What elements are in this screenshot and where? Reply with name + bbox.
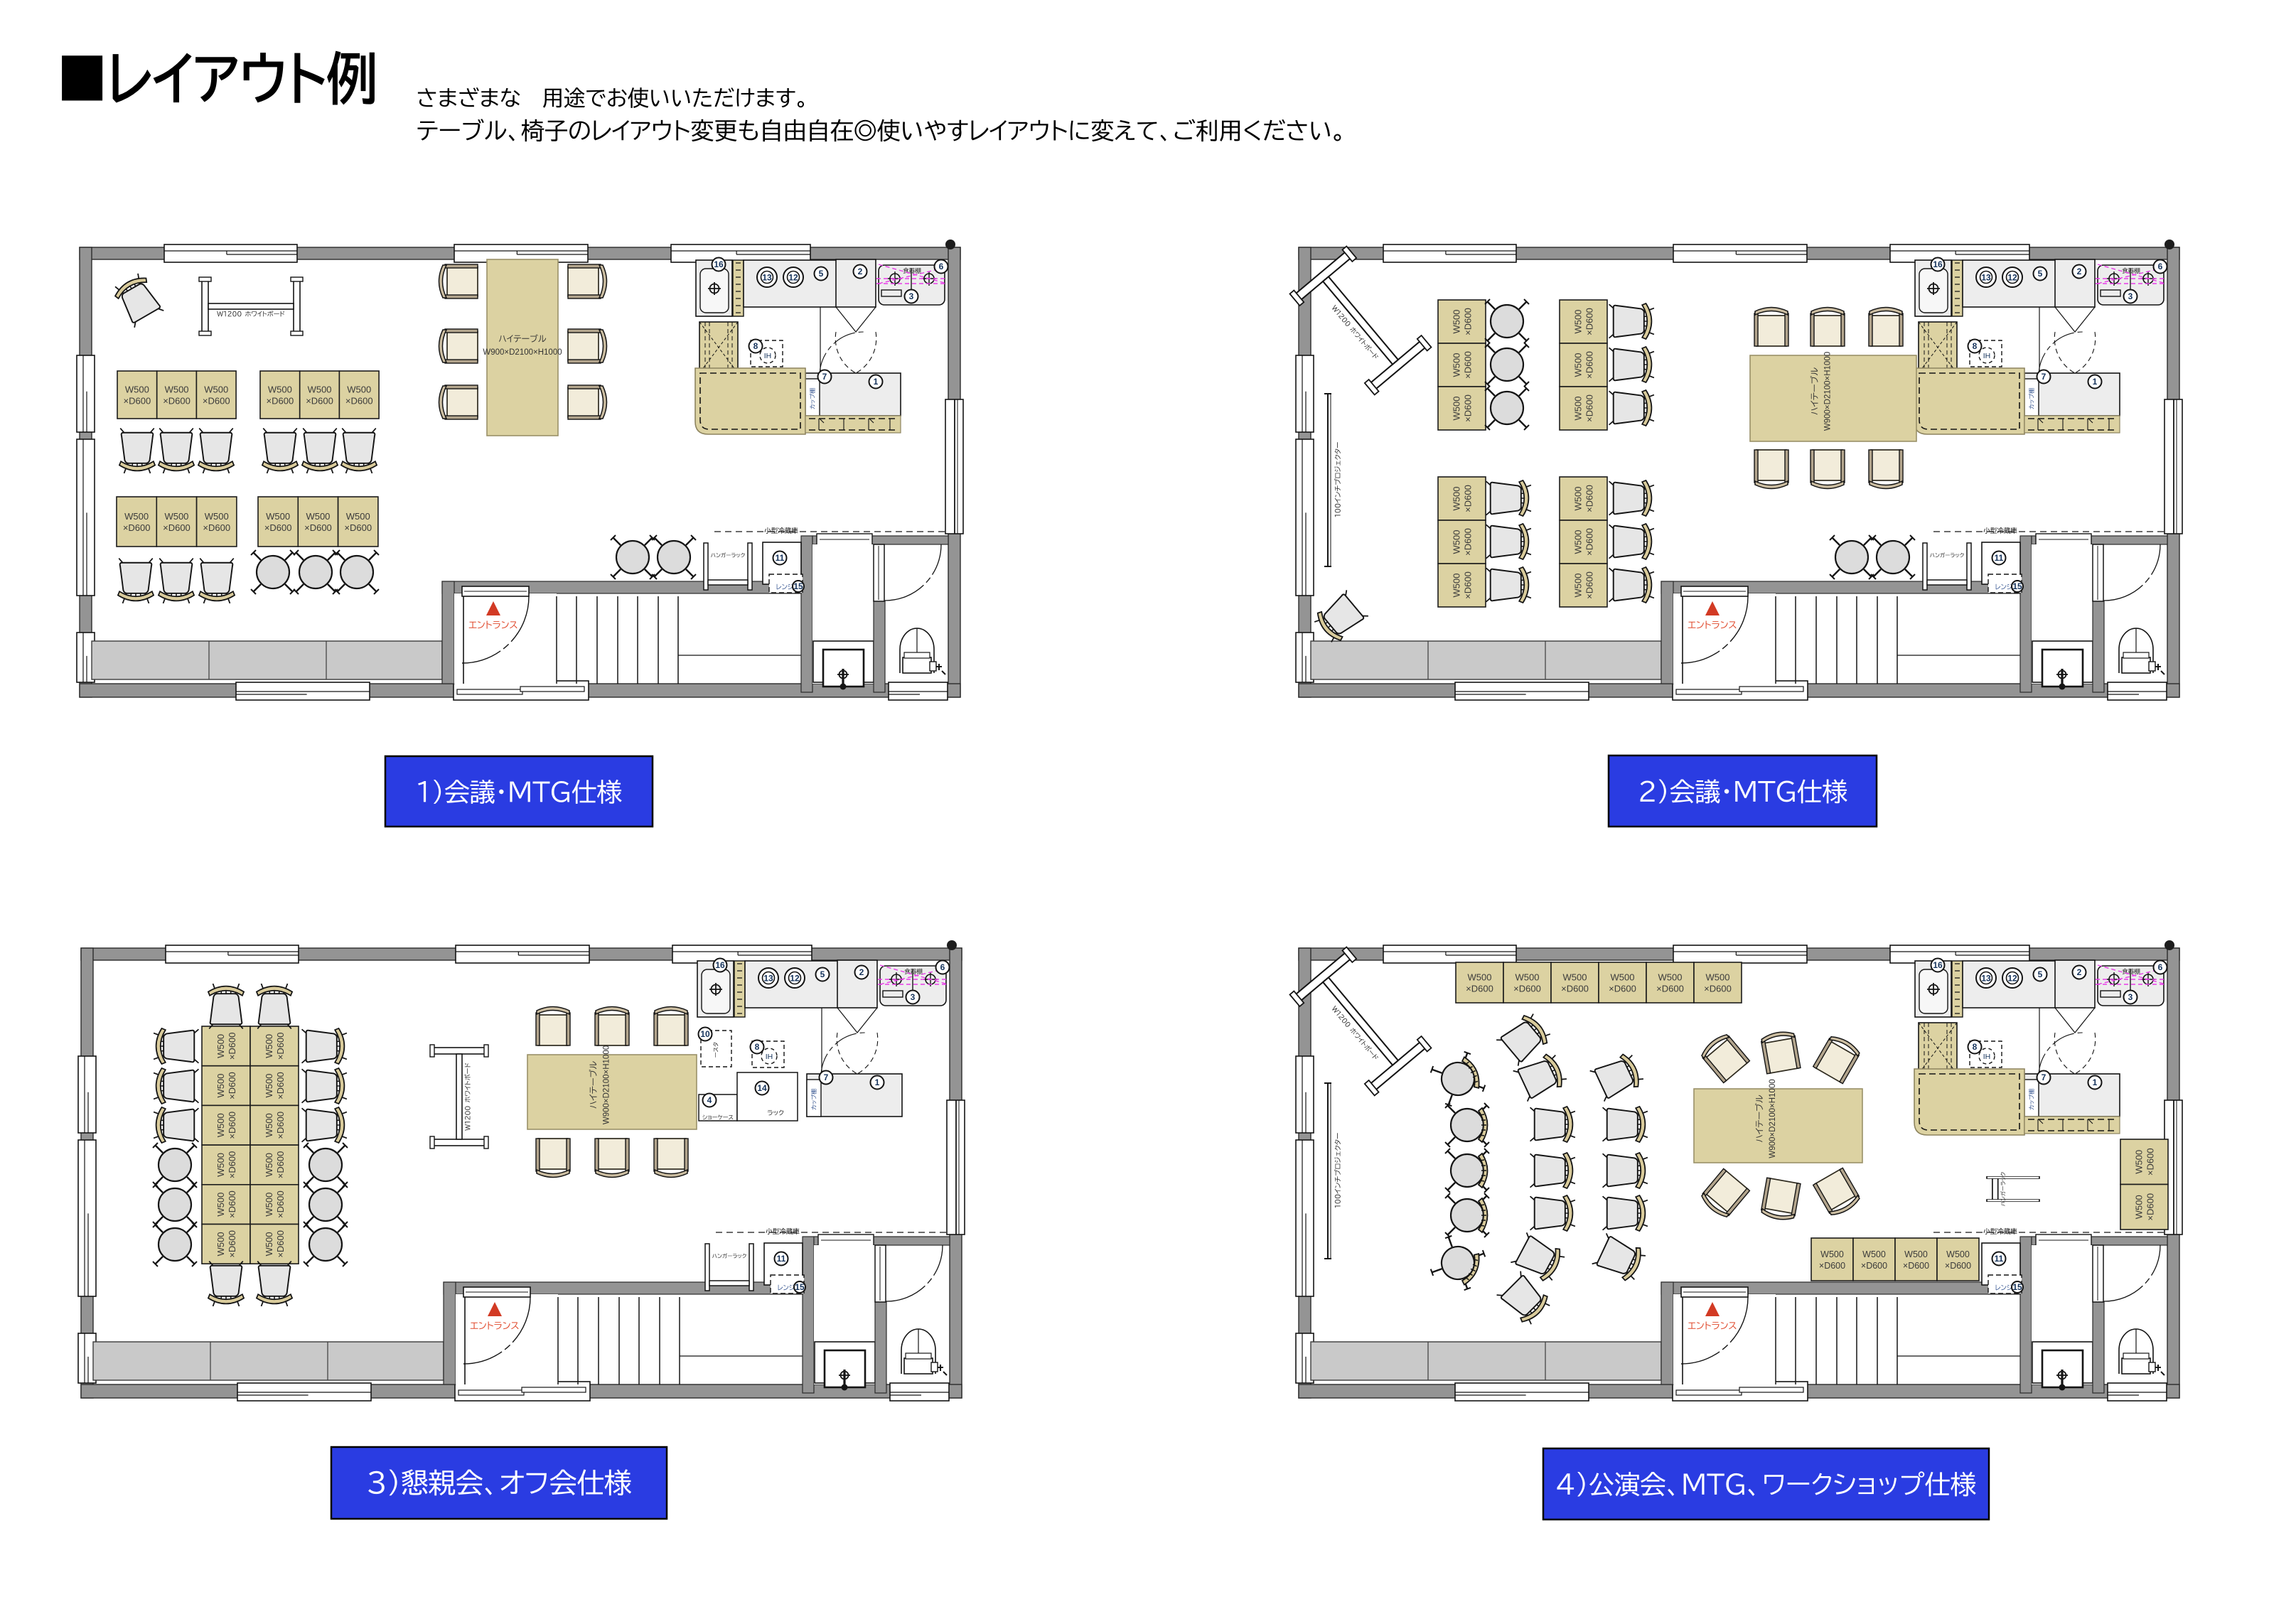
svg-text:×D600: ×D600 [203, 522, 230, 533]
svg-text:×D600: ×D600 [1945, 1261, 1971, 1271]
svg-text:×D600: ×D600 [1513, 984, 1541, 994]
svg-text:14: 14 [757, 1083, 767, 1093]
svg-text:W500: W500 [165, 384, 189, 395]
svg-text:×D600: ×D600 [2145, 1193, 2156, 1221]
svg-text:×D600: ×D600 [1561, 984, 1589, 994]
svg-text:×D600: ×D600 [275, 1151, 286, 1179]
svg-text:W500: W500 [204, 384, 228, 395]
svg-text:×D600: ×D600 [123, 522, 151, 533]
svg-text:×D600: ×D600 [1466, 984, 1493, 994]
svg-text:×D600: ×D600 [275, 1033, 286, 1060]
svg-text:W500: W500 [1468, 972, 1492, 983]
svg-text:W500: W500 [1452, 397, 1462, 421]
svg-text:W500: W500 [1946, 1249, 1970, 1259]
svg-text:W500: W500 [164, 511, 188, 522]
svg-text:×D600: ×D600 [1463, 394, 1474, 422]
svg-text:W500: W500 [268, 384, 292, 395]
svg-text:×D600: ×D600 [275, 1072, 286, 1099]
svg-text:4: 4 [707, 1095, 712, 1105]
svg-text:W500: W500 [306, 511, 330, 522]
svg-text:×D600: ×D600 [304, 522, 332, 533]
svg-text:×D600: ×D600 [227, 1033, 237, 1060]
svg-text:×D600: ×D600 [1704, 984, 1732, 994]
svg-text:W500: W500 [264, 1034, 274, 1058]
svg-text:W500: W500 [1820, 1249, 1844, 1259]
svg-text:W500: W500 [264, 1193, 274, 1217]
svg-text:×D600: ×D600 [2145, 1148, 2156, 1176]
svg-text:W500: W500 [1452, 353, 1462, 377]
svg-text:W900×D2100×H1000: W900×D2100×H1000 [483, 348, 562, 357]
svg-text:×D600: ×D600 [163, 522, 191, 533]
svg-text:W500: W500 [215, 1193, 226, 1217]
svg-text:W500: W500 [266, 511, 290, 522]
svg-text:×D600: ×D600 [227, 1190, 237, 1218]
svg-text:×D600: ×D600 [1656, 984, 1684, 994]
svg-text:×D600: ×D600 [1584, 485, 1595, 512]
svg-text:×D600: ×D600 [267, 396, 294, 407]
svg-text:×D600: ×D600 [1819, 1261, 1845, 1271]
svg-text:W500: W500 [1516, 972, 1540, 983]
svg-text:×D600: ×D600 [1584, 528, 1595, 556]
svg-text:×D600: ×D600 [227, 1151, 237, 1179]
svg-text:W900×D2100×H1000: W900×D2100×H1000 [603, 1045, 611, 1124]
svg-text:×D600: ×D600 [1584, 571, 1595, 599]
svg-text:W500: W500 [215, 1153, 226, 1177]
svg-text:×D600: ×D600 [227, 1072, 237, 1099]
svg-text:×D600: ×D600 [275, 1112, 286, 1139]
svg-text:W500: W500 [308, 384, 332, 395]
svg-text:W500: W500 [1573, 353, 1584, 377]
svg-text:×D600: ×D600 [1584, 351, 1595, 379]
svg-text:W500: W500 [264, 1113, 274, 1137]
svg-text:×D600: ×D600 [1584, 308, 1595, 335]
svg-text:×D600: ×D600 [275, 1190, 286, 1218]
svg-text:×D600: ×D600 [124, 396, 151, 407]
svg-text:×D600: ×D600 [227, 1230, 237, 1258]
svg-text:×D600: ×D600 [344, 522, 372, 533]
svg-text:W500: W500 [205, 511, 229, 522]
svg-text:W500: W500 [1862, 1249, 1886, 1259]
svg-text:W500: W500 [2134, 1150, 2145, 1174]
svg-text:W900×D2100×H1000: W900×D2100×H1000 [1824, 352, 1833, 431]
svg-text:×D600: ×D600 [227, 1112, 237, 1139]
svg-text:×D600: ×D600 [203, 396, 230, 407]
svg-text:×D600: ×D600 [163, 396, 191, 407]
svg-text:W500: W500 [215, 1034, 226, 1058]
svg-text:W500: W500 [1573, 530, 1584, 554]
svg-text:W500: W500 [1904, 1249, 1928, 1259]
svg-text:W500: W500 [1706, 972, 1730, 983]
svg-text:W500: W500 [1452, 487, 1462, 511]
svg-text:×D600: ×D600 [1903, 1261, 1929, 1271]
svg-text:W500: W500 [215, 1232, 226, 1256]
svg-text:W500: W500 [264, 1232, 274, 1256]
svg-text:W500: W500 [264, 1153, 274, 1177]
svg-text:×D600: ×D600 [1584, 394, 1595, 422]
svg-text:W500: W500 [1452, 530, 1462, 554]
svg-text:×D600: ×D600 [1463, 308, 1474, 335]
svg-text:W500: W500 [1573, 574, 1584, 598]
svg-text:W500: W500 [124, 511, 149, 522]
svg-text:W500: W500 [1452, 310, 1462, 334]
svg-text:×D600: ×D600 [306, 396, 333, 407]
svg-text:W500: W500 [2134, 1195, 2145, 1219]
svg-text:W500: W500 [1573, 397, 1584, 421]
svg-text:W500: W500 [215, 1074, 226, 1098]
svg-text:W900×D2100×H1000: W900×D2100×H1000 [1769, 1079, 1777, 1158]
svg-text:W500: W500 [1452, 574, 1462, 598]
svg-text:W500: W500 [1573, 487, 1584, 511]
svg-text:W500: W500 [346, 511, 370, 522]
svg-text:×D600: ×D600 [264, 522, 292, 533]
svg-text:W500: W500 [215, 1113, 226, 1137]
svg-text:W500: W500 [1658, 972, 1683, 983]
svg-text:×D600: ×D600 [1463, 571, 1474, 599]
svg-text:W500: W500 [125, 384, 149, 395]
svg-text:×D600: ×D600 [345, 396, 373, 407]
svg-text:×D600: ×D600 [1463, 351, 1474, 379]
svg-text:×D600: ×D600 [275, 1230, 286, 1258]
svg-text:W500: W500 [347, 384, 371, 395]
svg-text:×D600: ×D600 [1861, 1261, 1887, 1271]
svg-text:10: 10 [700, 1029, 710, 1039]
svg-text:×D600: ×D600 [1609, 984, 1636, 994]
svg-text:W500: W500 [264, 1074, 274, 1098]
svg-text:W500: W500 [1611, 972, 1635, 983]
svg-text:×D600: ×D600 [1463, 528, 1474, 556]
svg-text:×D600: ×D600 [1463, 485, 1474, 512]
svg-text:W500: W500 [1573, 310, 1584, 334]
svg-text:W500: W500 [1563, 972, 1587, 983]
